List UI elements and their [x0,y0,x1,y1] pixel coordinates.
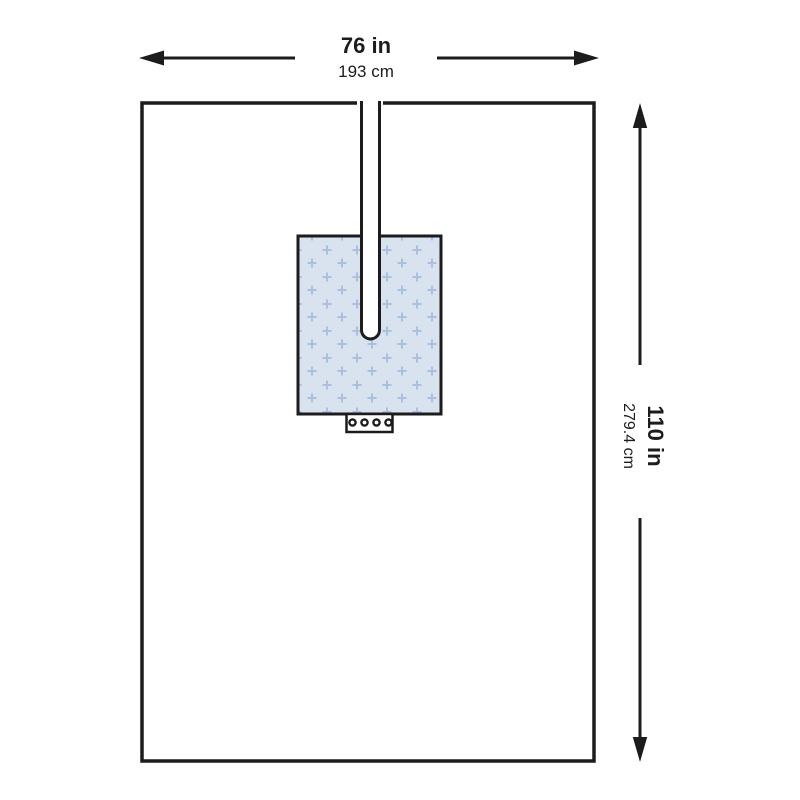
height-label-cm: 279.4 cm [620,403,637,469]
product-diagram-canvas: 76 in 193 cm 110 in 279.4 cm [0,0,800,800]
arrow-left-icon [139,51,164,66]
arrow-right-icon [574,51,599,66]
tab-dot [385,419,391,425]
arrow-down-icon [633,737,647,762]
height-label-group: 110 in 279.4 cm [620,403,668,469]
width-label-cm: 193 cm [338,62,394,81]
height-label-inches: 110 in [643,405,668,466]
tab-dot [349,419,355,425]
tab-dot [373,419,379,425]
surgical-drape-diagram: 76 in 193 cm 110 in 279.4 cm [0,0,800,800]
width-label-inches: 76 in [341,33,391,58]
tab-dot [361,419,367,425]
drape-slit [362,101,380,339]
arrow-up-icon [633,103,647,128]
